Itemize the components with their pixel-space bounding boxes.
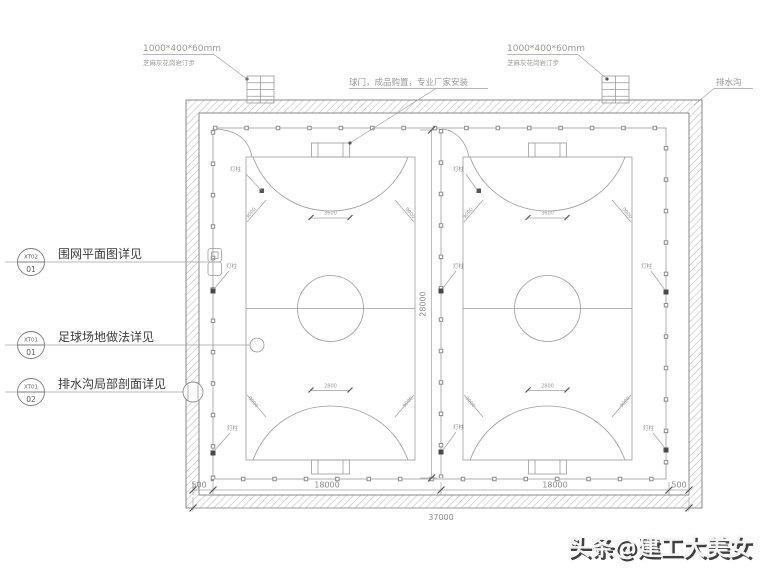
- drain-section-target-circle: [183, 382, 203, 402]
- dim-span1: 18000: [314, 481, 339, 490]
- callout-code: XT01: [24, 338, 38, 344]
- callout-number: 01: [26, 265, 36, 274]
- drain-label: 排水沟: [716, 77, 742, 88]
- paver-material-label: 芝麻灰花岗岩汀步: [143, 58, 196, 67]
- drain-note: 排水沟: [694, 77, 753, 105]
- penalty-arc-bottom: [470, 406, 625, 460]
- dim-goal-top: 3600: [541, 211, 554, 217]
- lamp-post-label: 灯柱: [641, 262, 653, 270]
- gate-swing-arc: [443, 129, 469, 157]
- dim-goal-bottom: 2800: [541, 384, 554, 390]
- goal-box-bottom-left-field: [312, 460, 350, 474]
- dim-arc-radius: 9000: [245, 207, 258, 221]
- gate-swing-arc: [217, 129, 252, 157]
- lamp-post-label: 灯柱: [230, 165, 242, 173]
- callout-fence-plan: XT02 01 围网平面图详见: [5, 246, 208, 276]
- stepping-stones-left: [247, 76, 274, 103]
- callout-code: XT01: [24, 385, 38, 391]
- paver-material-label: 芝麻灰花岗岩汀步: [507, 58, 560, 67]
- goal-box-bottom-right-field: [529, 460, 567, 474]
- callout-drain-section: XT01 02 排水沟局部剖面详见: [5, 376, 183, 406]
- paver-annotation-right: 1000*400*60mm 芝麻灰花岗岩汀步: [507, 44, 629, 103]
- dim-span2: 18000: [542, 481, 567, 490]
- vertical-dimension: 28000: [419, 127, 438, 482]
- dim-arc-radius: 9000: [462, 207, 475, 221]
- paver-annotation-left: 1000*400*60mm 芝麻灰花岗岩汀步: [143, 44, 274, 103]
- callout-number: 01: [26, 348, 36, 357]
- dim-arc-radius: 9000: [403, 207, 416, 221]
- lamp-post-label: 灯柱: [227, 424, 239, 432]
- dim-goal-bottom: 2800: [324, 384, 337, 390]
- football-field-right: 3600 2800 9000 9000 9000 9000: [443, 129, 633, 474]
- callout-label: 围网平面图详见: [58, 246, 142, 261]
- football-field-left: 3600 2800 9000 9000 9000 9000: [217, 129, 416, 474]
- paver-size-label: 1000*400*60mm: [143, 44, 221, 54]
- lamp-post-label: 灯柱: [453, 423, 465, 431]
- callout-label: 排水沟局部剖面详见: [58, 376, 166, 391]
- goal-note-label: 球门，成品购置，专业厂家安装: [349, 77, 469, 88]
- field-surface-target-circle: [250, 338, 264, 352]
- dim-goal-top: 3600: [324, 211, 337, 217]
- dim-total-height: 28000: [419, 291, 428, 316]
- dim-arc-radius: 9000: [620, 207, 633, 221]
- goal-box-top-left-field: [312, 143, 350, 157]
- penalty-arc-top: [253, 157, 408, 211]
- callout-number: 02: [26, 395, 36, 404]
- dim-total-width: 37000: [428, 513, 453, 522]
- goal-box-top-right-field: [529, 143, 567, 157]
- lamp-post-label: 灯柱: [453, 165, 465, 173]
- cad-site-plan: 3600 2800 9000 9000 9000 9000 3600 2800 …: [0, 0, 760, 570]
- penalty-arc-top: [470, 157, 625, 211]
- perimeter-wall: [186, 100, 702, 508]
- dim-arc-radius: 9000: [402, 396, 415, 410]
- drawing-page: 3600 2800 9000 9000 9000 9000 3600 2800 …: [0, 0, 760, 570]
- penalty-arc-bottom: [253, 406, 408, 460]
- fence-enclosure: [213, 128, 666, 479]
- dim-left-margin: 500: [191, 481, 206, 490]
- watermark-text: 头条@建工大美女: [568, 534, 752, 561]
- lamp-post-label: 灯柱: [226, 262, 238, 270]
- callout-label: 足球场地做法详见: [58, 329, 154, 344]
- dim-arc-radius: 9000: [619, 396, 632, 410]
- lamp-post-label: 灯柱: [643, 424, 655, 432]
- dim-right-margin: 500: [671, 481, 686, 490]
- watermark: 头条@建工大美女 头条@建工大美女: [568, 534, 755, 564]
- lamp-post-label: 灯柱: [453, 262, 465, 270]
- callout-code: XT02: [24, 255, 38, 261]
- paver-size-label: 1000*400*60mm: [507, 44, 585, 54]
